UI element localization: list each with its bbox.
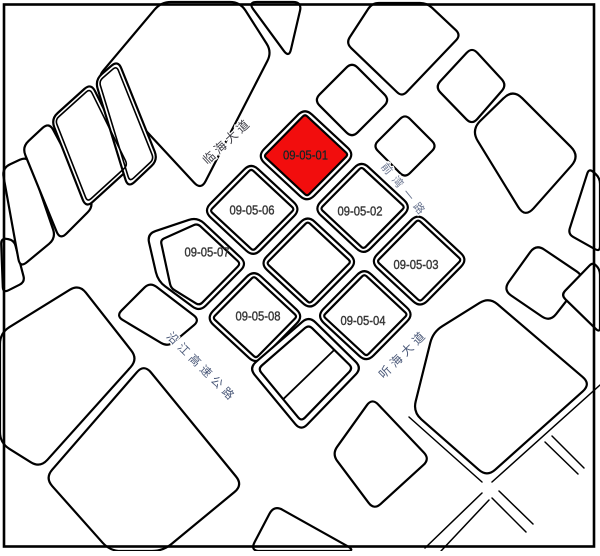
svg-text:09-05-07: 09-05-07 — [185, 245, 230, 260]
svg-text:09-05-04: 09-05-04 — [341, 313, 386, 328]
svg-text:09-05-01: 09-05-01 — [283, 148, 328, 163]
svg-text:09-05-06: 09-05-06 — [230, 203, 275, 218]
svg-text:09-05-03: 09-05-03 — [394, 257, 439, 272]
svg-text:09-05-08: 09-05-08 — [236, 309, 281, 324]
svg-text:09-05-02: 09-05-02 — [338, 204, 383, 219]
